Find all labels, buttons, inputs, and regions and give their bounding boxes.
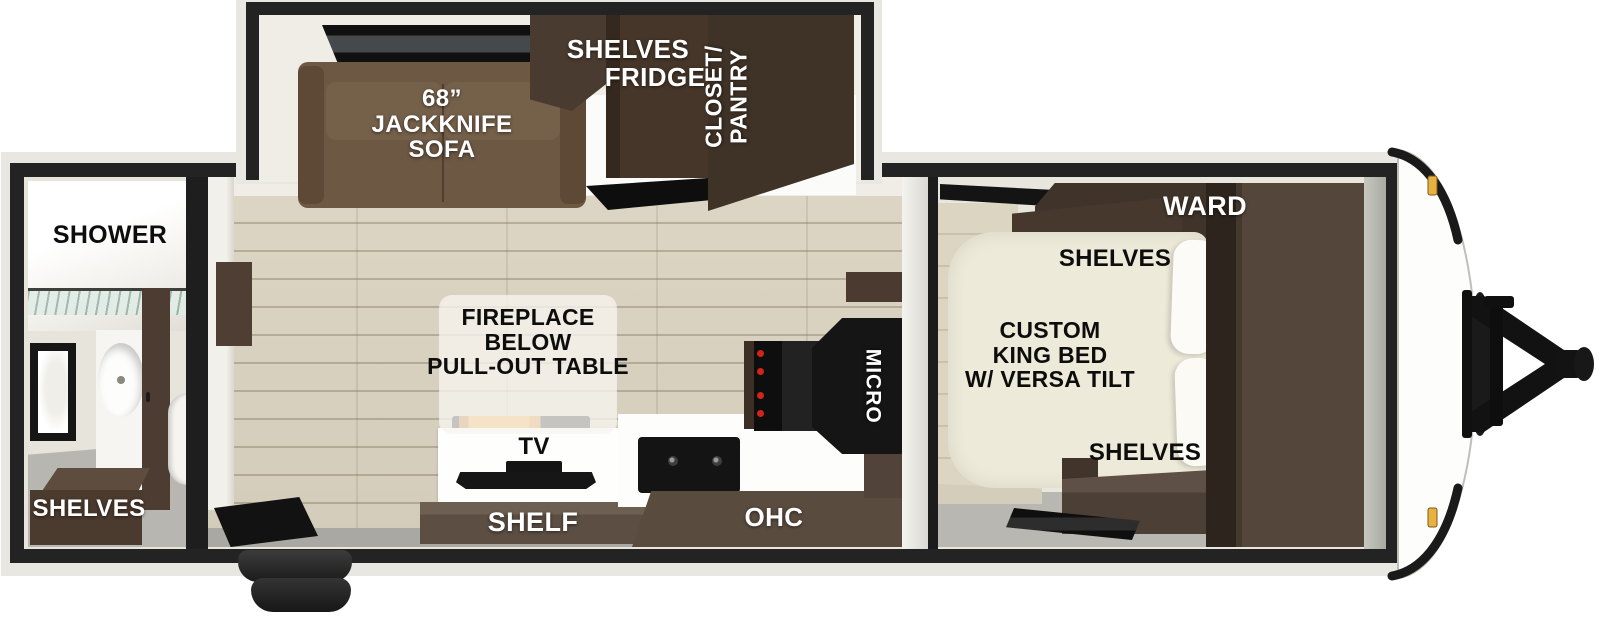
toilet [168, 393, 188, 485]
front-cap-and-hitch [1360, 140, 1600, 619]
fireplace-label-line1: FIREPLACE [412, 305, 644, 330]
kitchen-wall-shelf [846, 272, 902, 302]
fridge-label: FRIDGE [600, 64, 710, 92]
microwave: MICRO [812, 318, 906, 454]
bedroom-shelves-upper-label: SHELVES [1045, 246, 1185, 272]
bedroom-shelves-lower-label: SHELVES [1075, 440, 1215, 466]
bed-label-line2: KING BED [935, 343, 1165, 368]
fireplace-label: FIREPLACE BELOW PULL-OUT TABLE [412, 305, 644, 379]
slideout-shelves-label: SHELVES [558, 36, 698, 64]
bath-living-wall [186, 177, 208, 549]
range-knob-2 [757, 368, 764, 375]
closet-label-line1: CLOSET/ [701, 22, 726, 172]
closet-pantry-label: CLOSET/ PANTRY [701, 22, 750, 172]
hitch-crossbar [1462, 290, 1472, 438]
marker-light-top [1428, 176, 1437, 195]
tv-screen [456, 472, 596, 489]
shower-label: SHOWER [40, 222, 180, 249]
marker-light-bottom [1428, 508, 1437, 527]
entry-step-lower [251, 578, 351, 612]
fireplace-label-line2: BELOW [412, 330, 644, 355]
bed-label-line3: W/ VERSA TILT [935, 367, 1165, 392]
hitch-jack-post [1490, 302, 1503, 426]
king-bed-label: CUSTOM KING BED W/ VERSA TILT [935, 318, 1165, 392]
slideout-window [322, 25, 546, 63]
ward-label: WARD [1130, 192, 1280, 221]
sofa-label-line3: SOFA [298, 137, 586, 163]
tv-label: TV [474, 434, 594, 460]
closet-label-line2: PANTRY [726, 22, 751, 172]
living-wall-panel [216, 262, 252, 346]
range-knob-1 [757, 350, 764, 357]
range-knob-3 [757, 392, 764, 399]
range-knob-4 [757, 410, 764, 417]
bathroom-mirror [30, 343, 76, 441]
hitch-coupler-knob [1574, 347, 1594, 381]
floorplan-canvas: SHOWER SHELVES 68” JACKKNIFE SOFA SHELVE… [0, 0, 1600, 619]
sink-drain-right [712, 456, 722, 466]
wardrobe-side [1206, 183, 1364, 547]
fireplace-label-line3: PULL-OUT TABLE [412, 354, 644, 379]
sink-drain-left [668, 456, 678, 466]
bathroom-shelves-label: SHELVES [24, 496, 154, 522]
ohc-label: OHC [714, 504, 834, 532]
shelf-label: SHELF [420, 508, 646, 537]
door-handle [146, 392, 150, 402]
kitchen-sink [638, 437, 740, 493]
sofa-label-line2: JACKKNIFE [298, 112, 586, 138]
sink-drain [117, 376, 125, 384]
bed-label-line1: CUSTOM [935, 318, 1165, 343]
kitchen-bedroom-wall [902, 177, 930, 549]
micro-label: MICRO [861, 349, 883, 424]
hitch-jack-top [1484, 296, 1514, 308]
